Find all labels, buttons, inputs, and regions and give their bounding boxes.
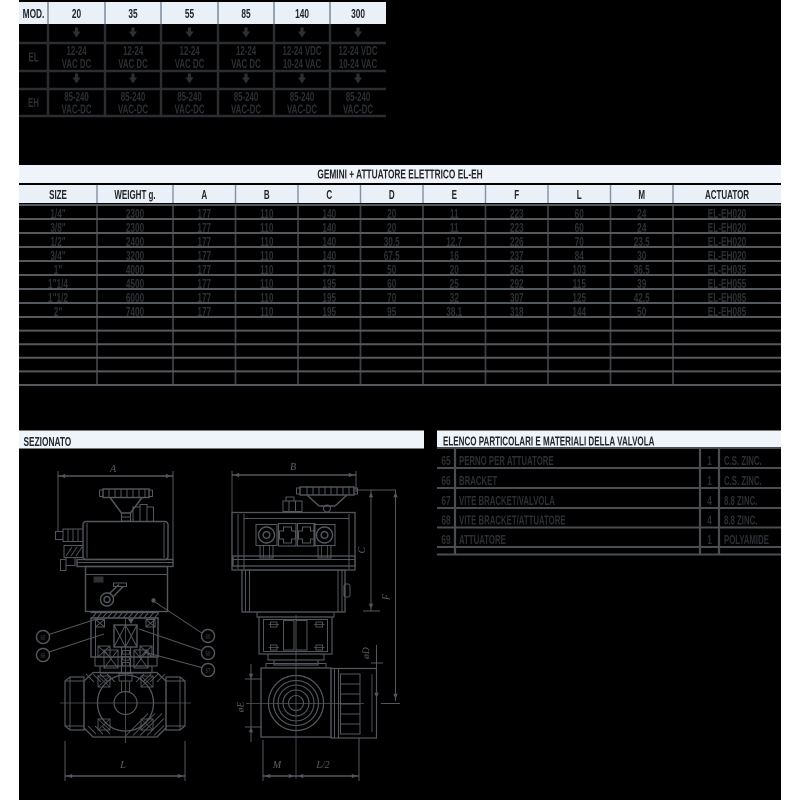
svg-text:110: 110 xyxy=(260,305,273,319)
svg-text:223: 223 xyxy=(510,207,524,221)
svg-text:226: 226 xyxy=(510,235,524,249)
svg-text:20: 20 xyxy=(72,7,81,21)
svg-text:67: 67 xyxy=(206,668,211,675)
svg-text:8.8 ZINC.: 8.8 ZINC. xyxy=(724,514,757,529)
svg-text:VAC DC: VAC DC xyxy=(62,58,92,71)
svg-text:4000: 4000 xyxy=(126,263,144,277)
svg-text:177: 177 xyxy=(197,263,211,277)
svg-text:110: 110 xyxy=(260,235,273,249)
svg-text:A: A xyxy=(201,189,207,202)
svg-text:EH: EH xyxy=(28,97,39,110)
svg-text:VAC DC: VAC DC xyxy=(175,58,205,71)
svg-text:PERNO PER ATTUATORE: PERNO PER ATTUATORE xyxy=(459,454,554,469)
svg-text:65: 65 xyxy=(41,635,47,642)
svg-text:12-24: 12-24 xyxy=(66,45,86,58)
svg-text:177: 177 xyxy=(197,291,211,305)
svg-text:11: 11 xyxy=(450,207,459,221)
svg-text:B: B xyxy=(264,189,270,202)
svg-text:32: 32 xyxy=(450,291,459,305)
svg-text:223: 223 xyxy=(510,221,524,235)
svg-text:177: 177 xyxy=(197,277,211,291)
svg-text:6000: 6000 xyxy=(126,291,144,305)
svg-text:EL: EL xyxy=(28,52,39,65)
svg-text:195: 195 xyxy=(322,277,336,291)
svg-text:110: 110 xyxy=(260,291,273,305)
svg-text:1/4": 1/4" xyxy=(50,207,65,221)
svg-text:7400: 7400 xyxy=(126,305,144,319)
svg-text:B: B xyxy=(290,462,296,473)
svg-text:25: 25 xyxy=(450,277,459,291)
svg-text:42.5: 42.5 xyxy=(634,291,650,305)
svg-text:3/4": 3/4" xyxy=(50,249,65,263)
svg-text:237: 237 xyxy=(510,249,524,263)
svg-text:85-240: 85-240 xyxy=(177,91,202,104)
svg-text:16: 16 xyxy=(450,249,459,263)
svg-text:20: 20 xyxy=(387,207,396,221)
svg-text:39: 39 xyxy=(637,277,646,291)
svg-text:60: 60 xyxy=(575,221,584,235)
svg-text:POLYAMIDE: POLYAMIDE xyxy=(724,533,769,548)
svg-text:171: 171 xyxy=(322,263,336,277)
svg-text:195: 195 xyxy=(322,291,336,305)
svg-text:4: 4 xyxy=(707,494,712,508)
svg-text:115: 115 xyxy=(573,277,586,291)
svg-text:VAC-DC: VAC-DC xyxy=(174,104,204,117)
svg-text:110: 110 xyxy=(260,207,273,221)
svg-text:24: 24 xyxy=(637,221,646,235)
svg-text:M: M xyxy=(638,189,645,202)
svg-text:C: C xyxy=(326,189,332,202)
svg-text:20: 20 xyxy=(450,263,459,277)
svg-text:EL-EH085: EL-EH085 xyxy=(708,291,747,305)
svg-text:70: 70 xyxy=(387,291,396,305)
svg-text:1: 1 xyxy=(707,533,712,547)
svg-text:110: 110 xyxy=(260,263,273,277)
svg-text:M: M xyxy=(272,760,282,771)
svg-text:307: 307 xyxy=(510,291,524,305)
svg-text:2300: 2300 xyxy=(126,207,144,221)
svg-text:60: 60 xyxy=(575,207,584,221)
svg-text:F: F xyxy=(514,189,519,202)
svg-text:195: 195 xyxy=(322,305,336,319)
svg-text:GEMINI + ATTUATORE ELETTRICO E: GEMINI + ATTUATORE ELETTRICO EL-EH xyxy=(317,168,482,182)
svg-text:35: 35 xyxy=(128,7,137,21)
svg-text:C.S. ZINC.: C.S. ZINC. xyxy=(724,454,762,469)
svg-text:VAC-DC: VAC-DC xyxy=(61,104,91,117)
svg-text:66: 66 xyxy=(41,653,47,660)
svg-text:VAC-DC: VAC-DC xyxy=(118,104,148,117)
svg-text:177: 177 xyxy=(197,235,211,249)
svg-text:VITE BRACKET/ATTUATORE: VITE BRACKET/ATTUATORE xyxy=(459,514,566,529)
svg-text:55: 55 xyxy=(185,7,194,21)
svg-text:12-24: 12-24 xyxy=(123,45,143,58)
svg-text:69: 69 xyxy=(441,533,450,547)
svg-text:177: 177 xyxy=(197,249,211,263)
svg-text:65: 65 xyxy=(441,454,450,468)
svg-text:EL-EH035: EL-EH035 xyxy=(708,263,747,277)
svg-text:69: 69 xyxy=(206,634,212,641)
svg-text:140: 140 xyxy=(295,7,309,21)
svg-text:EL-EH055: EL-EH055 xyxy=(708,277,747,291)
svg-text:144: 144 xyxy=(572,305,586,319)
svg-text:30: 30 xyxy=(637,249,646,263)
svg-text:SEZIONATO: SEZIONATO xyxy=(24,435,72,449)
svg-text:EL-EH020: EL-EH020 xyxy=(708,235,747,249)
svg-text:VAC-DC: VAC-DC xyxy=(287,104,317,117)
svg-text:140: 140 xyxy=(322,207,336,221)
svg-text:140: 140 xyxy=(322,221,336,235)
svg-text:2": 2" xyxy=(54,305,62,319)
svg-text:EL-EH020: EL-EH020 xyxy=(708,221,747,235)
svg-text:2400: 2400 xyxy=(126,235,144,249)
svg-text:24: 24 xyxy=(637,207,646,221)
svg-text:85-240: 85-240 xyxy=(290,91,315,104)
svg-text:10-24 VAC: 10-24 VAC xyxy=(339,58,378,71)
svg-text:3/8": 3/8" xyxy=(50,221,65,235)
svg-text:ACTUATOR: ACTUATOR xyxy=(705,189,749,202)
svg-text:12-24 VDC: 12-24 VDC xyxy=(339,45,378,58)
svg-text:8.8 ZINC.: 8.8 ZINC. xyxy=(724,494,757,509)
svg-text:11: 11 xyxy=(450,221,459,235)
svg-text:85: 85 xyxy=(241,7,250,21)
svg-text:85-240: 85-240 xyxy=(234,91,259,104)
svg-text:D: D xyxy=(389,189,395,202)
svg-text:38.1: 38.1 xyxy=(446,305,462,319)
svg-text:67: 67 xyxy=(441,494,450,508)
svg-text:50: 50 xyxy=(387,263,396,277)
svg-text:318: 318 xyxy=(510,305,524,319)
svg-text:1"1/4: 1"1/4 xyxy=(48,277,68,291)
svg-text:66: 66 xyxy=(441,474,450,488)
svg-text:177: 177 xyxy=(197,221,211,235)
svg-text:10-24 VAC: 10-24 VAC xyxy=(283,58,322,71)
svg-text:VAC-DC: VAC-DC xyxy=(231,104,261,117)
svg-text:2300: 2300 xyxy=(126,221,144,235)
svg-text:4500: 4500 xyxy=(126,277,144,291)
svg-text:103: 103 xyxy=(572,263,586,277)
svg-text:110: 110 xyxy=(260,221,273,235)
svg-text:EL-EH085: EL-EH085 xyxy=(708,305,747,319)
svg-text:23.5: 23.5 xyxy=(634,235,650,249)
svg-text:50: 50 xyxy=(637,305,646,319)
svg-text:1: 1 xyxy=(707,474,712,488)
svg-text:177: 177 xyxy=(197,207,211,221)
svg-text:60: 60 xyxy=(387,277,396,291)
svg-text:85-240: 85-240 xyxy=(346,91,371,104)
svg-text:264: 264 xyxy=(510,263,524,277)
svg-text:68: 68 xyxy=(441,514,450,528)
svg-text:125: 125 xyxy=(572,291,586,305)
svg-text:177: 177 xyxy=(197,305,211,319)
svg-text:BRACKET: BRACKET xyxy=(459,474,497,489)
svg-text:67.5: 67.5 xyxy=(384,249,400,263)
svg-text:3200: 3200 xyxy=(126,249,144,263)
svg-text:C: C xyxy=(357,546,368,553)
svg-text:øE: øE xyxy=(237,702,247,714)
svg-text:F: F xyxy=(382,593,393,601)
svg-text:84: 84 xyxy=(575,249,584,263)
svg-text:E: E xyxy=(452,189,457,202)
svg-text:12-24: 12-24 xyxy=(236,45,256,58)
svg-text:85-240: 85-240 xyxy=(121,91,146,104)
svg-text:C.S. ZINC.: C.S. ZINC. xyxy=(724,474,762,489)
svg-text:1"1/2: 1"1/2 xyxy=(48,291,68,305)
svg-text:1/2": 1/2" xyxy=(50,235,65,249)
svg-text:85-240: 85-240 xyxy=(64,91,89,104)
svg-text:VAC-DC: VAC-DC xyxy=(343,104,373,117)
svg-text:L: L xyxy=(119,760,126,771)
svg-text:L/2: L/2 xyxy=(315,760,329,771)
svg-text:68: 68 xyxy=(206,651,212,658)
svg-text:20: 20 xyxy=(387,221,396,235)
svg-text:140: 140 xyxy=(322,235,336,249)
svg-text:95: 95 xyxy=(387,305,396,319)
svg-text:EL-EH020: EL-EH020 xyxy=(708,207,747,221)
svg-text:4: 4 xyxy=(707,514,712,528)
svg-text:L: L xyxy=(577,189,582,202)
svg-text:110: 110 xyxy=(260,277,273,291)
svg-text:MOD.: MOD. xyxy=(23,7,45,21)
svg-text:36.5: 36.5 xyxy=(634,263,650,277)
svg-text:30.5: 30.5 xyxy=(384,235,400,249)
svg-text:ELENCO PARTICOLARI E MATERIALI: ELENCO PARTICOLARI E MATERIALI DELLA VAL… xyxy=(443,435,655,449)
svg-text:VAC DC: VAC DC xyxy=(231,58,261,71)
svg-text:1": 1" xyxy=(54,263,62,277)
svg-text:VAC DC: VAC DC xyxy=(118,58,148,71)
svg-text:12-24 VDC: 12-24 VDC xyxy=(283,45,322,58)
svg-text:12.7: 12.7 xyxy=(446,235,462,249)
svg-text:300: 300 xyxy=(351,7,365,21)
svg-text:EL-EH020: EL-EH020 xyxy=(708,249,747,263)
svg-text:140: 140 xyxy=(322,249,336,263)
svg-text:A: A xyxy=(109,464,117,475)
svg-text:1: 1 xyxy=(707,454,712,468)
svg-text:øD: øD xyxy=(362,647,372,660)
svg-text:70: 70 xyxy=(575,235,584,249)
svg-text:110: 110 xyxy=(260,249,273,263)
svg-text:292: 292 xyxy=(510,277,524,291)
svg-text:ATTUATORE: ATTUATORE xyxy=(459,533,506,548)
svg-text:12-24: 12-24 xyxy=(179,45,199,58)
svg-text:SIZE: SIZE xyxy=(49,189,67,202)
svg-text:WEIGHT g.: WEIGHT g. xyxy=(114,189,155,202)
svg-text:VITE BRACKET/VALVOLA: VITE BRACKET/VALVOLA xyxy=(459,494,555,509)
